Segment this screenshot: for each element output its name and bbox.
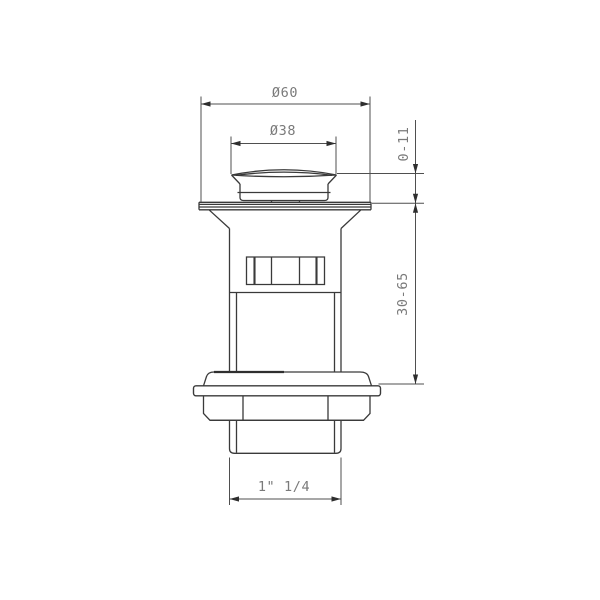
arrow-popup-bottom xyxy=(413,194,418,204)
funnel-cone xyxy=(209,210,361,229)
seal-plate xyxy=(194,386,381,396)
threaded-tail xyxy=(230,420,342,453)
middle-tube xyxy=(230,293,342,372)
dim-label-outer-diameter: Ø60 xyxy=(272,85,298,101)
dimension-arrowheads xyxy=(201,101,418,501)
arrow-dia60-right xyxy=(361,101,371,106)
dim-label-thread-size: 1" 1/4 xyxy=(258,479,310,495)
arrow-thread-left xyxy=(230,496,240,501)
arrow-dia38-right xyxy=(327,141,337,146)
shoulder-seat xyxy=(204,372,372,386)
cap-dome xyxy=(232,170,337,184)
dim-label-cap-diameter: Ø38 xyxy=(270,123,296,139)
dim-outer-diameter-lines xyxy=(201,97,370,203)
top-flange xyxy=(199,202,371,210)
arrow-dia38-left xyxy=(231,141,241,146)
dim-cap-diameter-lines xyxy=(231,137,336,175)
arrow-popup-top xyxy=(413,164,418,174)
dim-label-installation-length: 30-65 xyxy=(395,272,411,316)
arrow-thread-right xyxy=(332,496,342,501)
dim-label-pop-up-travel: 0-11 xyxy=(396,127,412,162)
valve-body xyxy=(230,229,342,293)
backnut xyxy=(204,396,371,421)
drain-valve-drawing xyxy=(0,0,600,600)
part-outline xyxy=(194,170,381,454)
cap-bands xyxy=(238,184,331,203)
technical-drawing-canvas: Ø60 Ø38 0-11 30-65 1" 1/4 xyxy=(0,0,600,600)
arrow-length-bottom xyxy=(413,375,418,385)
dimension-lines xyxy=(201,97,424,506)
arrow-length-top xyxy=(413,203,418,213)
arrow-dia60-left xyxy=(201,101,211,106)
